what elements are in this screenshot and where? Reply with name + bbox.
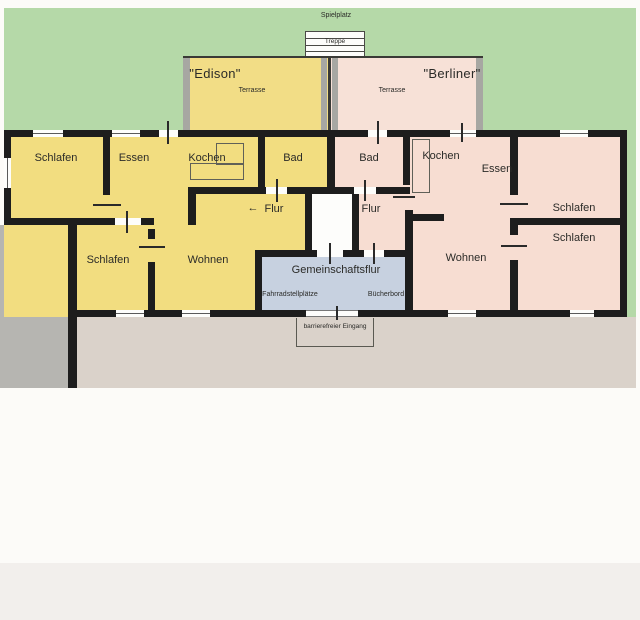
stairs-label: Treppe [325, 38, 345, 45]
terrace-divider-gray-r [332, 58, 338, 132]
wall [510, 218, 627, 225]
door-tick [139, 246, 165, 248]
room-label-kochen: Kochen [422, 150, 459, 162]
wall [103, 137, 110, 195]
wall [258, 137, 265, 190]
wall [148, 229, 155, 239]
wall [510, 260, 518, 317]
door-tick [93, 204, 121, 206]
kitchen-counter [190, 163, 244, 180]
terrace-divider-gray-l [321, 58, 327, 132]
room-label-bad: Bad [283, 152, 303, 164]
room-label-essen: Essen [119, 152, 150, 164]
room-label-flur: Flur [265, 203, 284, 215]
room-label-schlafen: Schlafen [553, 202, 596, 214]
wall [4, 130, 627, 137]
wall [148, 262, 155, 317]
door-tick [329, 243, 331, 264]
wall [352, 187, 359, 257]
scan-bottom-band [0, 563, 640, 620]
kitchen-counter [412, 139, 430, 193]
wall [68, 218, 77, 388]
wall [327, 132, 335, 190]
berliner-terrace-label: Terrasse [379, 87, 406, 94]
room-label-flur: Flur [362, 203, 381, 215]
door-tick [501, 245, 527, 247]
door-tick [276, 179, 278, 202]
vestibule-floor [307, 190, 357, 254]
shared-hall-floor [258, 253, 410, 315]
terrace-divider-line [328, 57, 331, 132]
room-label-wohnen: Wohnen [446, 252, 487, 264]
wall [405, 210, 413, 317]
room-label-schlafen: Schlafen [87, 254, 130, 266]
room-label-schlafen: Schlafen [553, 232, 596, 244]
floor-plan: Spielplatz Treppe "Edison" Terrasse "Ber… [0, 0, 640, 620]
stairs-box: Treppe [305, 31, 365, 59]
door-tick [500, 203, 528, 205]
room-label-wohnen: Wohnen [188, 254, 229, 266]
wall [410, 214, 444, 221]
room-label-kochen: Kochen [188, 152, 225, 164]
wall [510, 225, 518, 235]
door-tick [364, 180, 366, 201]
door-tick [126, 211, 128, 233]
entrance-note-label: barrierefreier Eingang [304, 323, 367, 330]
shared-hall-title: Gemeinschaftsflur [292, 264, 381, 276]
entrance-threshold [306, 310, 358, 317]
room-label-bad: Bad [359, 152, 379, 164]
bookshelf-label: Bücherbord [368, 291, 404, 298]
door-tick [393, 196, 415, 198]
bike-parking-label: Fahrradstellplätze [262, 291, 318, 298]
wall [188, 187, 196, 225]
wall [305, 187, 312, 257]
playground-label: Spielplatz [321, 12, 351, 19]
edison-terrace-label: Terrasse [239, 87, 266, 94]
room-label-essen: Essen [482, 163, 513, 175]
door-tick [377, 121, 379, 144]
door-tick [167, 121, 169, 144]
room-label-schlafen: Schlafen [35, 152, 78, 164]
entrance-note-box: barrierefreier Eingang [296, 318, 374, 347]
wall [403, 137, 410, 185]
edison-title: "Edison" [189, 66, 240, 81]
door-gap [115, 218, 141, 225]
berliner-title: "Berliner" [423, 66, 480, 81]
flur-arrow-icon: ← [248, 202, 259, 214]
door-tick [373, 243, 375, 264]
door-tick [461, 123, 463, 142]
wall [255, 253, 262, 317]
